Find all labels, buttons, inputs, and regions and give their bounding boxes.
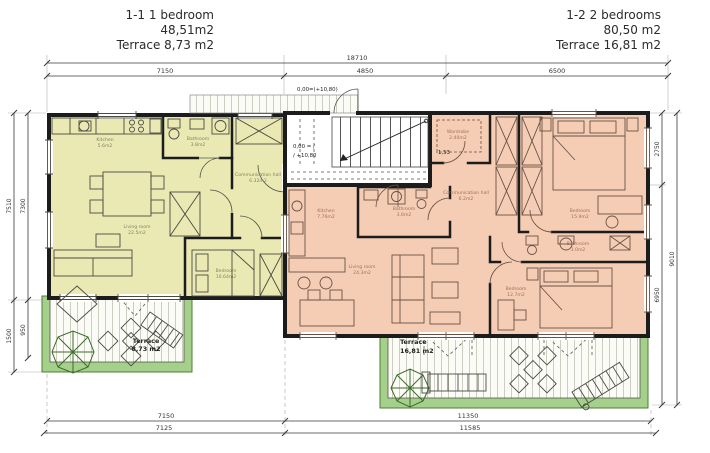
dimension-chain-right: 2750 6950 9010: [650, 110, 682, 408]
dim-left-inner-terrace: 950: [20, 324, 27, 336]
room-label-bedroom1: Bedroom: [570, 208, 591, 214]
room-area-living: 22.5m2: [128, 230, 146, 236]
terrace-right-area-label: 16,81 m2: [400, 347, 434, 355]
dim-top-seg2: 4850: [357, 67, 374, 75]
room-label-living: Living room: [123, 224, 151, 230]
unit-left-title: 1-1 1 bedroom: [125, 8, 214, 22]
dim-bottom-row2-seg1: 7125: [156, 424, 173, 432]
room-area-hall-right: 6.2m2: [459, 196, 474, 202]
level-stair-line2: / +10,80: [293, 153, 317, 159]
dim-top-total: 18710: [347, 54, 368, 62]
entrance-steps: [190, 95, 358, 113]
room-area-bedroom: 10.64m2: [216, 274, 237, 280]
room-label-bedroom: Bedroom: [216, 268, 237, 274]
room-area-hall: 6.32m2: [249, 178, 267, 184]
room-label-bathroom1: Bathroom: [393, 206, 416, 212]
unit-left-apartment: Kitchen 5.6m2 Bathroom 3.8m2 Communicati…: [45, 111, 288, 322]
room-area-living-right: 24.3m2: [353, 270, 371, 276]
title-block-unit-right: 1-2 2 bedrooms 80,50 m2 Terrace 16,81 m2: [555, 8, 661, 52]
dim-top-seg1: 7150: [157, 67, 174, 75]
dim-bottom-row1-seg1: 7150: [158, 412, 175, 420]
unit-right-title: 1-2 2 bedrooms: [566, 8, 661, 22]
parasol: [52, 331, 94, 373]
terrace-left: Terrace 8,73 m2: [42, 296, 192, 373]
level-landing: -1,53: [436, 150, 450, 156]
room-area-bathroom2: 3.0m2: [571, 247, 586, 253]
room-area-wardrobe: 2.40m2: [449, 135, 467, 141]
unit-left-area: 48,51m2: [160, 23, 214, 37]
room-area-bathroom: 3.8m2: [191, 142, 206, 148]
room-area-kitchen-right: 7.76m2: [317, 214, 335, 220]
dim-left-outer-terrace: 1500: [6, 328, 13, 343]
room-label-wardrobe: Wardrobe: [447, 129, 469, 135]
room-label-hall: Communication hall: [235, 172, 281, 178]
unit-left-floor: [49, 115, 285, 298]
room-label-hall-right: Communication hall: [443, 190, 489, 196]
dim-right-inner-bottom: 6950: [654, 287, 661, 302]
terrace-right: Terrace 16,81 m2: [380, 328, 648, 412]
level-entrance: 0,00=(+10,80): [297, 87, 338, 93]
room-label-bedroom2: Bedroom: [506, 286, 527, 292]
room-area-bedroom2: 12.7m2: [507, 292, 525, 298]
dimension-chain-left: 7510 1500 7300 950: [6, 110, 46, 375]
room-label-kitchen-right: Kitchen: [317, 208, 334, 214]
parasol: [391, 369, 429, 407]
room-area-bathroom1: 3.6m2: [397, 212, 412, 218]
room-area-kitchen: 5.6m2: [98, 143, 113, 149]
dim-right-inner-top: 2750: [654, 141, 661, 156]
title-block-unit-left: 1-1 1 bedroom 48,51m2 Terrace 8,73 m2: [116, 8, 214, 52]
dim-left-inner-main: 7300: [20, 198, 27, 213]
terrace-left-area-label: 8,73 m2: [131, 345, 160, 353]
level-stair-line1: 0,00 = /: [293, 144, 315, 150]
unit-left-terrace-area: Terrace 8,73 m2: [116, 38, 214, 52]
floor-plan-page: 1-1 1 bedroom 48,51m2 Terrace 8,73 m2 1-…: [0, 0, 710, 453]
unit-right-terrace-area: Terrace 16,81 m2: [555, 38, 661, 52]
floor-plan-canvas: 1-1 1 bedroom 48,51m2 Terrace 8,73 m2 1-…: [0, 0, 710, 453]
terrace-left-label: Terrace: [133, 337, 160, 345]
dim-right-outer: 9010: [669, 251, 676, 266]
dim-left-outer-main: 7510: [6, 198, 13, 213]
dim-top-seg3: 6500: [549, 67, 566, 75]
room-label-kitchen: Kitchen: [96, 137, 113, 143]
dim-bottom-row1-seg2: 11350: [458, 412, 479, 420]
unit-right-area: 80,50 m2: [604, 23, 662, 37]
room-label-bathroom: Bathroom: [187, 136, 210, 142]
room-area-bedroom1: 15.9m2: [571, 214, 589, 220]
room-label-living-right: Living room: [348, 264, 376, 270]
dim-bottom-row2-seg2: 11585: [460, 424, 481, 432]
room-label-bathroom2: Bathroom: [567, 241, 590, 247]
